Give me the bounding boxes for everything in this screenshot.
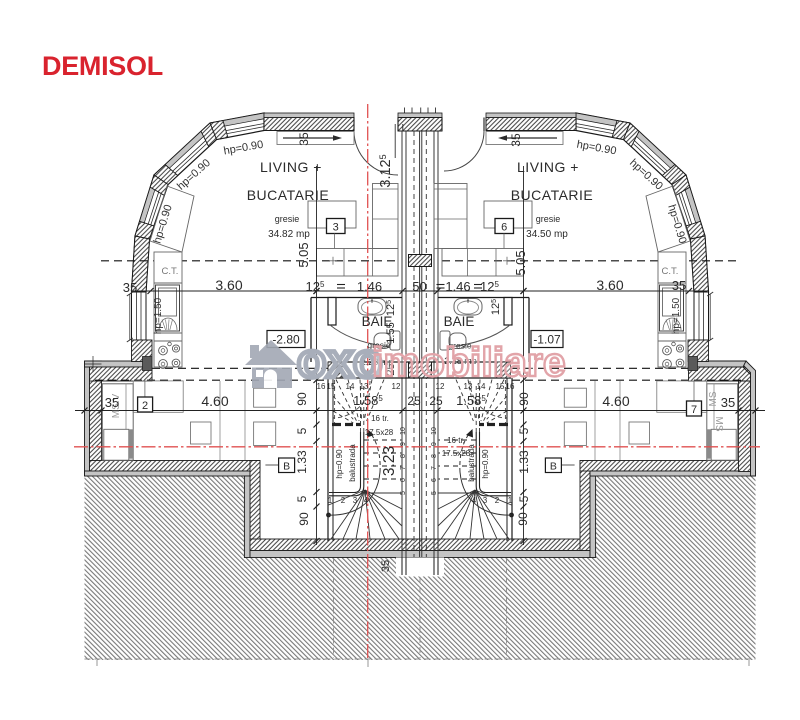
svg-text:5.05: 5.05 — [513, 250, 528, 275]
svg-text:10: 10 — [431, 427, 438, 435]
svg-text:90: 90 — [297, 512, 311, 526]
svg-text:5: 5 — [400, 491, 407, 495]
svg-text:90: 90 — [517, 392, 531, 406]
svg-text:90: 90 — [516, 512, 530, 526]
svg-text:1.33: 1.33 — [295, 450, 309, 474]
svg-text:5.05: 5.05 — [296, 242, 311, 267]
svg-text:5: 5 — [431, 491, 438, 495]
svg-text:hp=0.90: hp=0.90 — [335, 449, 344, 479]
svg-text:imobiliare: imobiliare — [372, 339, 566, 385]
svg-text:35: 35 — [380, 560, 392, 572]
svg-text:2: 2 — [495, 496, 500, 505]
svg-text:3: 3 — [353, 496, 358, 505]
svg-text:4.60: 4.60 — [602, 393, 629, 409]
svg-text:gresie: gresie — [536, 214, 561, 224]
svg-text:35: 35 — [123, 280, 137, 295]
svg-text:1.46: 1.46 — [445, 279, 470, 294]
svg-text:B: B — [550, 461, 557, 473]
svg-text:2: 2 — [142, 400, 148, 412]
svg-text:hp=1.50: hp=1.50 — [671, 297, 682, 334]
svg-text:DEMISOL: DEMISOL — [42, 51, 163, 81]
svg-text:5: 5 — [295, 495, 309, 502]
svg-text:25: 25 — [407, 394, 421, 408]
svg-text:35: 35 — [297, 132, 311, 146]
svg-text:LIVING +: LIVING + — [260, 159, 322, 175]
svg-text:16 tr.: 16 tr. — [371, 414, 389, 423]
svg-text:9: 9 — [400, 442, 407, 446]
svg-text:1.46: 1.46 — [357, 279, 382, 294]
svg-text:34.82 mp: 34.82 mp — [268, 229, 310, 240]
svg-text:7: 7 — [400, 466, 407, 470]
svg-text:BUCATARIE: BUCATARIE — [511, 187, 594, 203]
svg-text:25: 25 — [429, 394, 443, 408]
svg-text:4: 4 — [364, 496, 369, 505]
svg-text:1: 1 — [328, 496, 333, 505]
svg-text:BAIE: BAIE — [444, 314, 475, 329]
svg-text:gresie: gresie — [275, 214, 300, 224]
svg-text:oxo: oxo — [297, 335, 382, 388]
svg-text:6: 6 — [501, 222, 507, 234]
svg-text:35: 35 — [721, 395, 735, 410]
svg-text:LIVING +: LIVING + — [517, 159, 579, 175]
svg-text:6: 6 — [400, 478, 407, 482]
svg-text:8: 8 — [431, 454, 438, 458]
svg-text:B: B — [283, 461, 290, 473]
svg-text:1.33: 1.33 — [517, 450, 531, 474]
svg-text:5: 5 — [517, 495, 531, 502]
svg-text:17.5x28: 17.5x28 — [365, 428, 394, 437]
svg-text:MS: MS — [713, 417, 724, 432]
svg-text:hp=0.90: hp=0.90 — [481, 449, 490, 479]
svg-text:35: 35 — [105, 395, 119, 410]
svg-text:90: 90 — [295, 392, 309, 406]
svg-text:6: 6 — [431, 478, 438, 482]
svg-text:5: 5 — [295, 427, 309, 434]
svg-text:35: 35 — [672, 278, 686, 293]
svg-text:-2.80: -2.80 — [272, 333, 300, 347]
svg-text:8: 8 — [400, 454, 407, 458]
svg-text:35: 35 — [509, 133, 523, 147]
svg-text:balustrada: balustrada — [467, 444, 476, 482]
svg-text:1: 1 — [508, 496, 513, 505]
svg-text:C.T.: C.T. — [662, 266, 679, 277]
svg-text:4: 4 — [472, 496, 477, 505]
svg-text:3.60: 3.60 — [596, 277, 623, 293]
svg-text:50: 50 — [412, 279, 426, 294]
svg-text:3: 3 — [483, 496, 488, 505]
svg-text:10: 10 — [400, 427, 407, 435]
svg-text:3.23: 3.23 — [381, 446, 398, 476]
svg-text:7: 7 — [431, 466, 438, 470]
svg-text:hp=1.50: hp=1.50 — [153, 297, 164, 334]
svg-text:16 tr.: 16 tr. — [447, 436, 465, 445]
svg-text:3.60: 3.60 — [215, 277, 242, 293]
svg-text:C.T.: C.T. — [162, 266, 179, 277]
svg-text:2: 2 — [341, 496, 346, 505]
svg-text:7: 7 — [691, 404, 697, 416]
svg-text:BUCATARIE: BUCATARIE — [247, 187, 330, 203]
svg-text:34.50 mp: 34.50 mp — [526, 229, 568, 240]
svg-text:3: 3 — [333, 222, 339, 234]
svg-text:MS: MS — [708, 391, 719, 406]
svg-text:9: 9 — [431, 442, 438, 446]
svg-text:5: 5 — [517, 427, 531, 434]
svg-text:balustrada: balustrada — [348, 444, 357, 482]
svg-text:4.60: 4.60 — [201, 393, 228, 409]
